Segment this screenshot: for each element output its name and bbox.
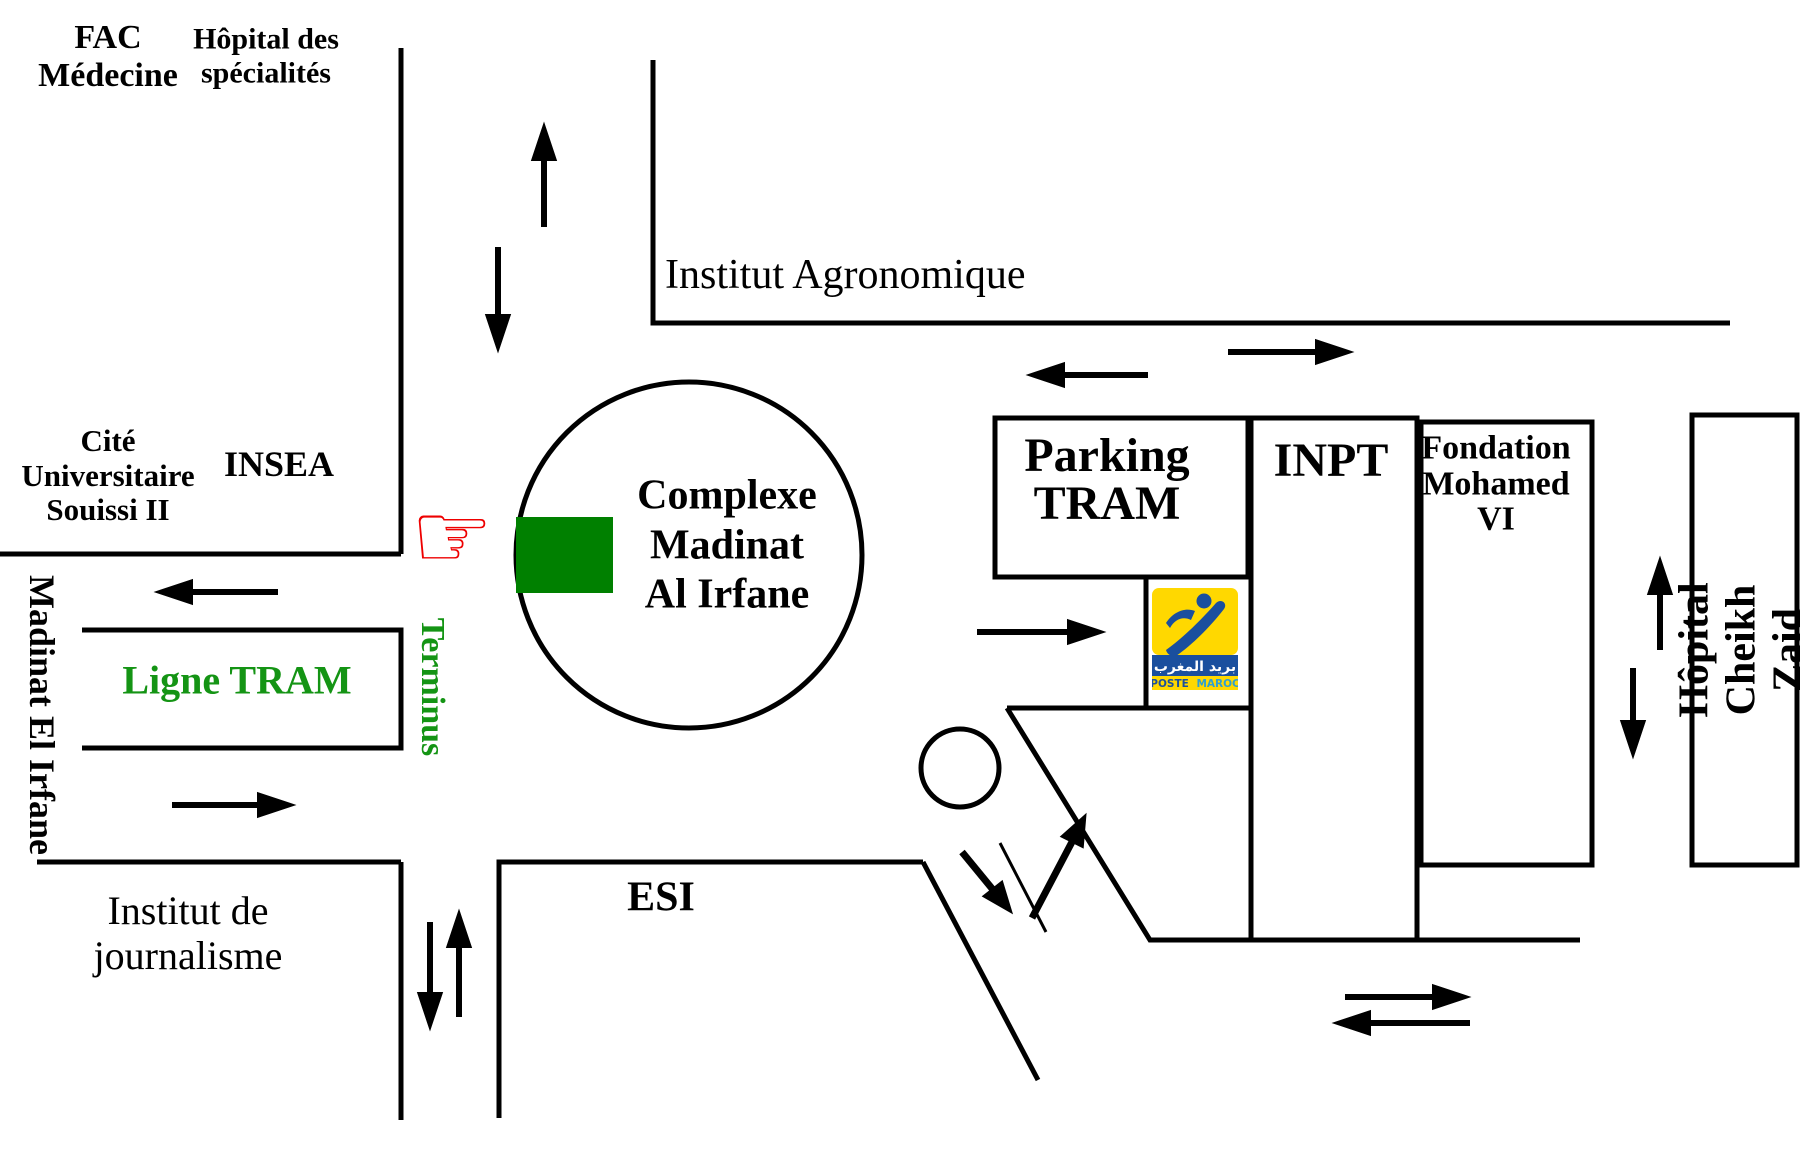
- label-terminus: Terminus: [413, 618, 451, 757]
- arrow-down-cheikh-zaid-road: [1624, 668, 1642, 750]
- arrow-down-bottom-road: [421, 922, 439, 1022]
- map-canvas: FAC Médecine Hôpital des spécialités Cit…: [0, 0, 1800, 1150]
- pointing-hand-icon: ☞: [411, 491, 493, 583]
- arrow-right-tram-road: [172, 796, 287, 814]
- arrow-down-top-road: [489, 247, 507, 344]
- arrow-right-agronomique-road: [1228, 343, 1345, 361]
- diagonal-road-left-edge: [923, 862, 1038, 1080]
- label-madinat-el-irfane: Madinat El Irfane: [22, 575, 62, 855]
- inpt-column: [1251, 418, 1417, 940]
- arrow-right-to-poste: [977, 623, 1097, 641]
- arrow-up-diagonal-road: [1032, 820, 1083, 918]
- logo-yellow-square: [1152, 588, 1238, 655]
- tram-stop-green-rect: [516, 517, 613, 593]
- diagonal-road-right-edge: [1007, 708, 1580, 940]
- label-hopital-specialites: Hôpital des spécialités: [193, 22, 339, 89]
- label-ligne-tram: Ligne TRAM: [122, 659, 351, 704]
- label-complexe-madinat: Complexe Madinat Al Irfane: [637, 472, 817, 621]
- arrow-left-tram-road: [163, 583, 278, 601]
- arrow-left-bottom-right-road: [1341, 1014, 1470, 1032]
- poste-maroc-logo: بريد المغرب POSTE MAROC: [1152, 588, 1238, 690]
- label-esi: ESI: [627, 874, 695, 921]
- label-institut-agronomique: Institut Agronomique: [665, 252, 1026, 299]
- logo-maroc-text: MAROC: [1196, 678, 1238, 690]
- arrow-up-bottom-road: [450, 918, 468, 1017]
- label-cite-universitaire: Cité Universitaire Souissi II: [21, 424, 194, 528]
- arrow-up-top-road: [535, 131, 553, 227]
- label-inpt: INPT: [1274, 434, 1389, 488]
- arrow-right-bottom-right-road: [1345, 988, 1462, 1006]
- label-parking-tram: Parking TRAM: [1024, 432, 1189, 528]
- diagonal-lane-divider: [1000, 843, 1046, 932]
- logo-arabic-text: بريد المغرب: [1154, 659, 1236, 675]
- arrow-down-diagonal-road: [962, 852, 1008, 908]
- roundabout-circle: [921, 729, 999, 807]
- label-hopital-cheikh-zaid: Hôpital Cheikh Zaid: [1671, 582, 1800, 717]
- logo-poste-text: POSTE: [1152, 678, 1189, 690]
- label-fondation-mohamed-vi: Fondation Mohamed VI: [1421, 430, 1570, 537]
- arrow-left-agronomique-road: [1035, 366, 1148, 384]
- label-institut-journalisme: Institut de journalisme: [94, 889, 283, 979]
- esi-block-outline: [499, 862, 923, 1118]
- arrow-up-cheikh-zaid-road: [1651, 565, 1669, 650]
- label-insea: INSEA: [224, 444, 334, 484]
- label-fac-medecine: FAC Médecine: [38, 19, 178, 95]
